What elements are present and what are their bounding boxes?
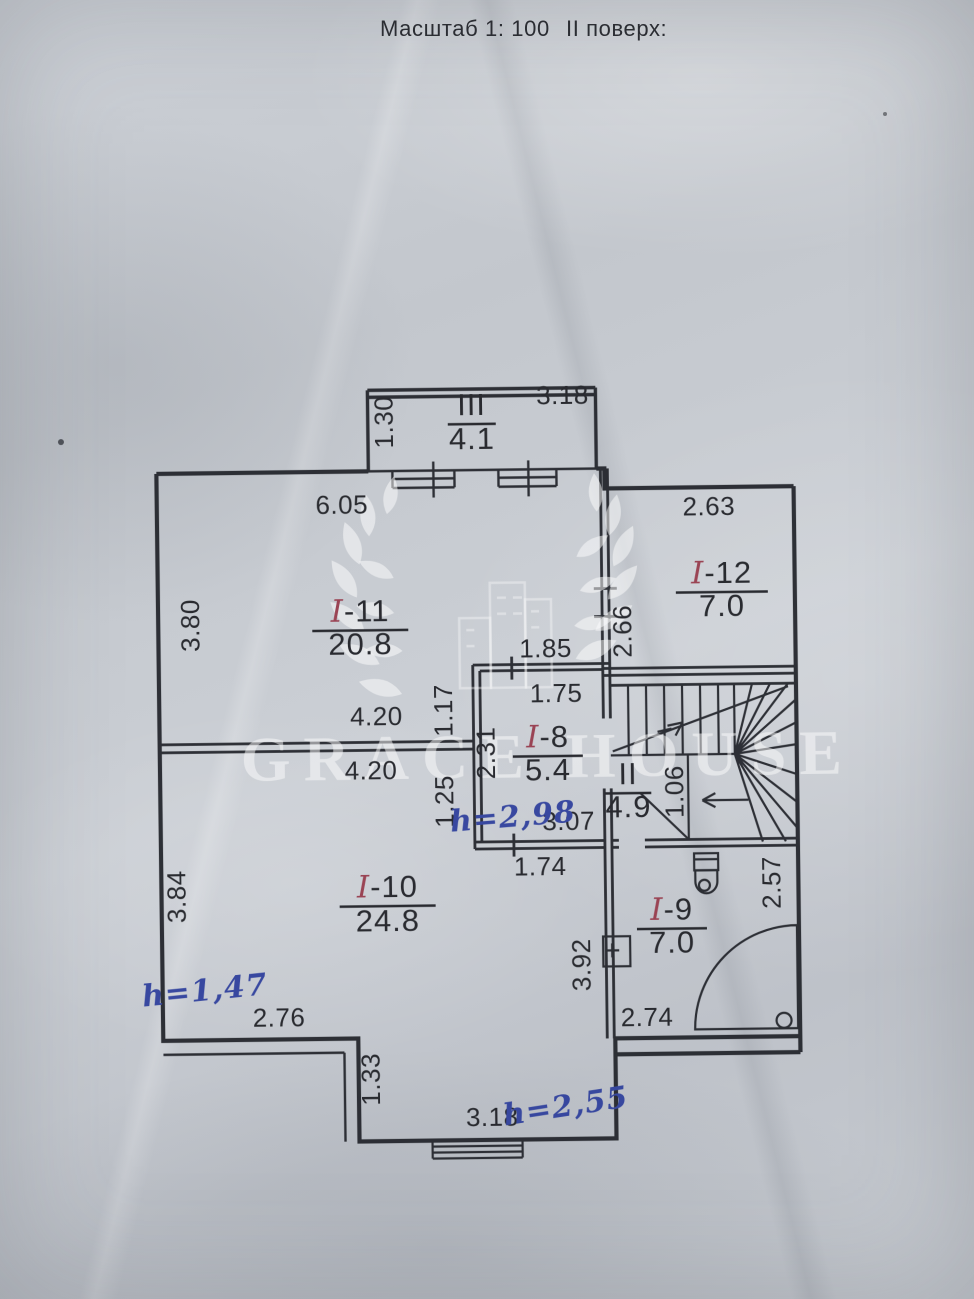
room-area-label: 20.8 (328, 626, 393, 662)
room-number-label: III (457, 387, 486, 422)
handwritten-height-note: h=1,47 (140, 967, 269, 1014)
dimension-label: 1.30 (368, 396, 399, 449)
room-number-handwritten-prefix: I (525, 719, 540, 755)
room-number-label: I-9 (649, 891, 693, 928)
room-number-handwritten-prefix: I (329, 594, 344, 630)
dimension-label: 1.75 (530, 678, 583, 709)
dimension-label: 1.06 (659, 765, 690, 818)
dimension-label: 6.05 (315, 489, 368, 520)
dimension-label: 3.80 (175, 599, 206, 652)
dimension-label: 3.84 (161, 870, 192, 923)
handwritten-height-note: h=2,55 (501, 1080, 631, 1134)
room9-top-wall (612, 838, 798, 847)
room-number-handwritten-prefix: I (356, 869, 371, 905)
bath-drain (776, 1013, 791, 1028)
photographed-floor-plan-document: Масштаб 1: 100 II поверх: (0, 0, 974, 1299)
room-number-handwritten-prefix: I (690, 555, 705, 591)
toilet-tank (694, 853, 718, 870)
paper-speck (58, 439, 64, 445)
room-number-label: I-11 (329, 593, 389, 630)
toilet-icon (694, 853, 718, 893)
dimension-label: 2.57 (756, 856, 787, 909)
room-number-label: I-10 (356, 869, 418, 906)
room12-bottom-wall (603, 666, 796, 675)
paper-speck (883, 112, 887, 116)
dimension-label: 2.31 (470, 726, 501, 779)
dimension-label: 2.74 (621, 1002, 674, 1033)
room-number-label: I-12 (690, 555, 752, 592)
dimension-label: 4.20 (350, 701, 403, 732)
toilet-drain (699, 880, 710, 891)
dimension-label: 4.20 (345, 755, 398, 786)
room-number-label: I-8 (525, 719, 569, 756)
dimension-label: 2.63 (682, 491, 735, 522)
dimension-label: 1.17 (428, 684, 459, 737)
room-area-label: 7.0 (649, 924, 696, 960)
room-number-label: II (618, 756, 638, 791)
dimension-label: 1.33 (355, 1053, 386, 1106)
dimension-label: 1.85 (519, 633, 572, 664)
room-area-label: 7.0 (699, 588, 746, 624)
room-number-handwritten-prefix: I (649, 892, 664, 928)
scale-label: Масштаб 1: 100 (380, 16, 550, 42)
balcony-window-band (368, 460, 596, 499)
dimension-label: 2.66 (607, 605, 638, 658)
floor-plan-svg: GRACE HOUSE 3.181.306.052.633.802.661.85… (0, 0, 974, 1299)
stair-lower-arrow (702, 793, 748, 808)
room-area-label: 4.1 (449, 421, 496, 457)
dimension-label: 3.92 (566, 938, 597, 991)
floor-label: II поверх: (566, 16, 667, 42)
corner-bath-icon (694, 925, 798, 1029)
dimension-label: 2.76 (253, 1002, 306, 1033)
room-area-label: 24.8 (355, 903, 420, 939)
dimension-label: 1.74 (514, 851, 567, 882)
room-area-label: 4.9 (605, 789, 652, 825)
inner-wall-accent (163, 1053, 345, 1144)
dimension-label: 3.18 (536, 380, 589, 411)
room-area-label: 5.4 (525, 752, 572, 788)
